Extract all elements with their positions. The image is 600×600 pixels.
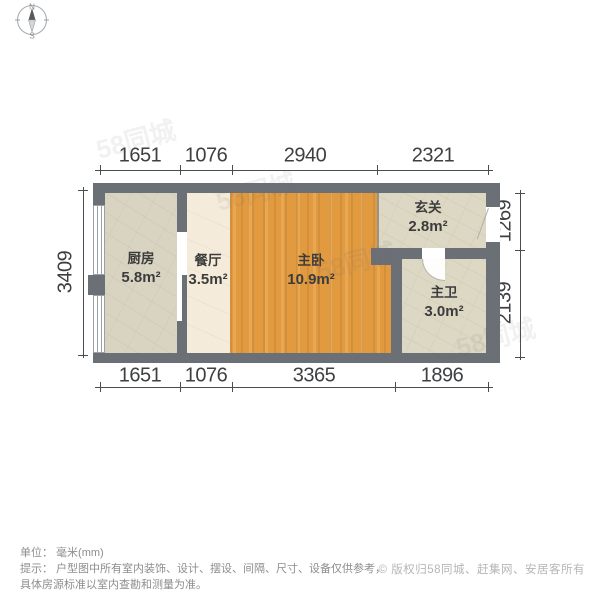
wall-top (93, 183, 500, 193)
dim-line-right (520, 190, 521, 360)
dim-tick (232, 382, 233, 392)
entry-bedroom-divider (377, 193, 379, 248)
window-pane-line (101, 296, 102, 352)
window-left-1 (93, 205, 105, 275)
window-pane-line (101, 206, 102, 274)
dim-top-2: 1076 (185, 145, 228, 168)
kitchen-door-opening (177, 232, 187, 275)
floorplan-canvas: N S 1651 1076 2940 2321 1651 1076 3365 1… (0, 0, 600, 600)
footer-unit-line: 单位： 毫米(mm) (20, 546, 104, 562)
compass-north-label: N (29, 3, 35, 12)
dim-bottom-3: 3365 (293, 365, 336, 388)
entry-door-opening (486, 207, 500, 242)
window-pane-line (97, 206, 98, 274)
dim-tick (515, 250, 525, 251)
room-name: 玄关 (408, 199, 447, 217)
dim-tick (232, 165, 233, 175)
room-label-bathroom: 主卫 3.0m² (424, 284, 463, 322)
dim-bottom-1: 1651 (119, 365, 162, 388)
dim-left-1: 3409 (55, 251, 78, 294)
room-area: 2.8m² (408, 217, 447, 237)
room-area: 10.9m² (287, 270, 335, 290)
wall-left-mid (88, 275, 105, 295)
dim-tick (377, 165, 378, 175)
window-pane-line (97, 296, 98, 352)
compass-south-label: S (29, 32, 34, 41)
dim-tick (100, 382, 101, 392)
dim-tick (515, 357, 525, 358)
dim-tick (78, 355, 88, 356)
compass-icon: N S (5, 0, 59, 47)
wall-bottom (93, 353, 500, 363)
wall-bathroom-left (391, 259, 402, 353)
footer-tip-line1: 提示： 户型图中所有室内装饰、设计、摆设、间隔、尺寸、设备仅供参考， (20, 562, 386, 578)
dim-tick (488, 165, 489, 175)
footer-copyright: © 版权归58同城、赶集网、安居客所有 (379, 561, 585, 577)
wall-left-top (93, 193, 105, 205)
dim-tick (515, 193, 525, 194)
room-area: 3.5m² (188, 270, 227, 290)
dim-tick (488, 382, 489, 392)
dim-tick (180, 165, 181, 175)
dim-tick (78, 190, 88, 191)
dim-line-top (95, 170, 493, 171)
room-name: 厨房 (121, 250, 160, 268)
room-name: 餐厅 (188, 252, 227, 270)
dim-tick (180, 382, 181, 392)
room-label-bedroom: 主卧 10.9m² (287, 252, 335, 290)
dim-tick (100, 165, 101, 175)
room-name: 主卫 (424, 284, 463, 302)
dim-bottom-4: 1896 (421, 365, 464, 388)
dim-top-3: 2940 (284, 145, 327, 168)
window-left-2 (93, 295, 105, 353)
wall-corner-block (371, 259, 391, 265)
room-area: 5.8m² (121, 268, 160, 288)
footer-tip-line2: 具体房源标准以室内查勘和测量为准。 (20, 578, 207, 594)
dim-line-left (83, 187, 84, 358)
room-label-entry: 玄关 2.8m² (408, 199, 447, 237)
kitchen-sliding-panel (177, 275, 182, 321)
bathroom-door-opening (422, 248, 445, 259)
dim-top-4: 2321 (412, 145, 455, 168)
room-area: 3.0m² (424, 302, 463, 322)
dim-top-1: 1651 (119, 145, 162, 168)
room-name: 主卧 (287, 252, 335, 270)
dim-tick (395, 382, 396, 392)
room-label-kitchen: 厨房 5.8m² (121, 250, 160, 288)
room-label-dining: 餐厅 3.5m² (188, 252, 227, 290)
dim-bottom-2: 1076 (185, 365, 228, 388)
